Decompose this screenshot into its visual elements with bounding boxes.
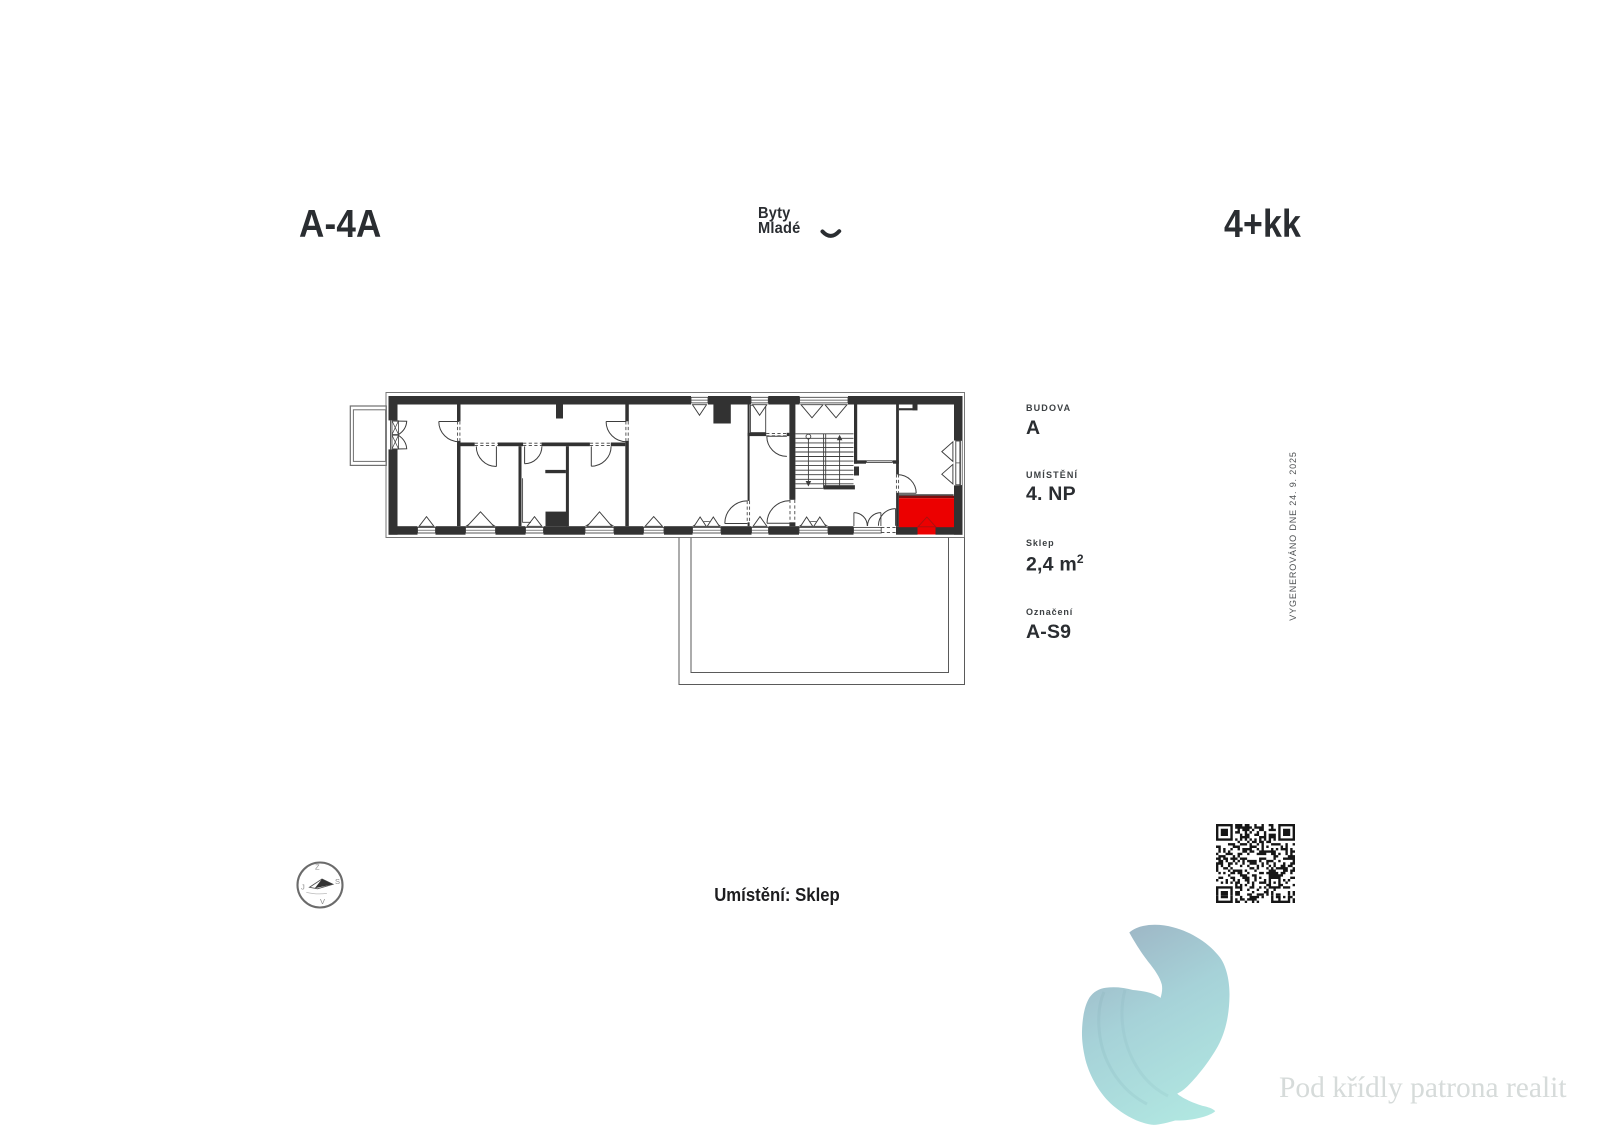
svg-text:S: S <box>335 877 340 886</box>
svg-text:Z: Z <box>315 863 320 872</box>
svg-text:J: J <box>301 883 305 892</box>
svg-text:V: V <box>320 897 325 906</box>
